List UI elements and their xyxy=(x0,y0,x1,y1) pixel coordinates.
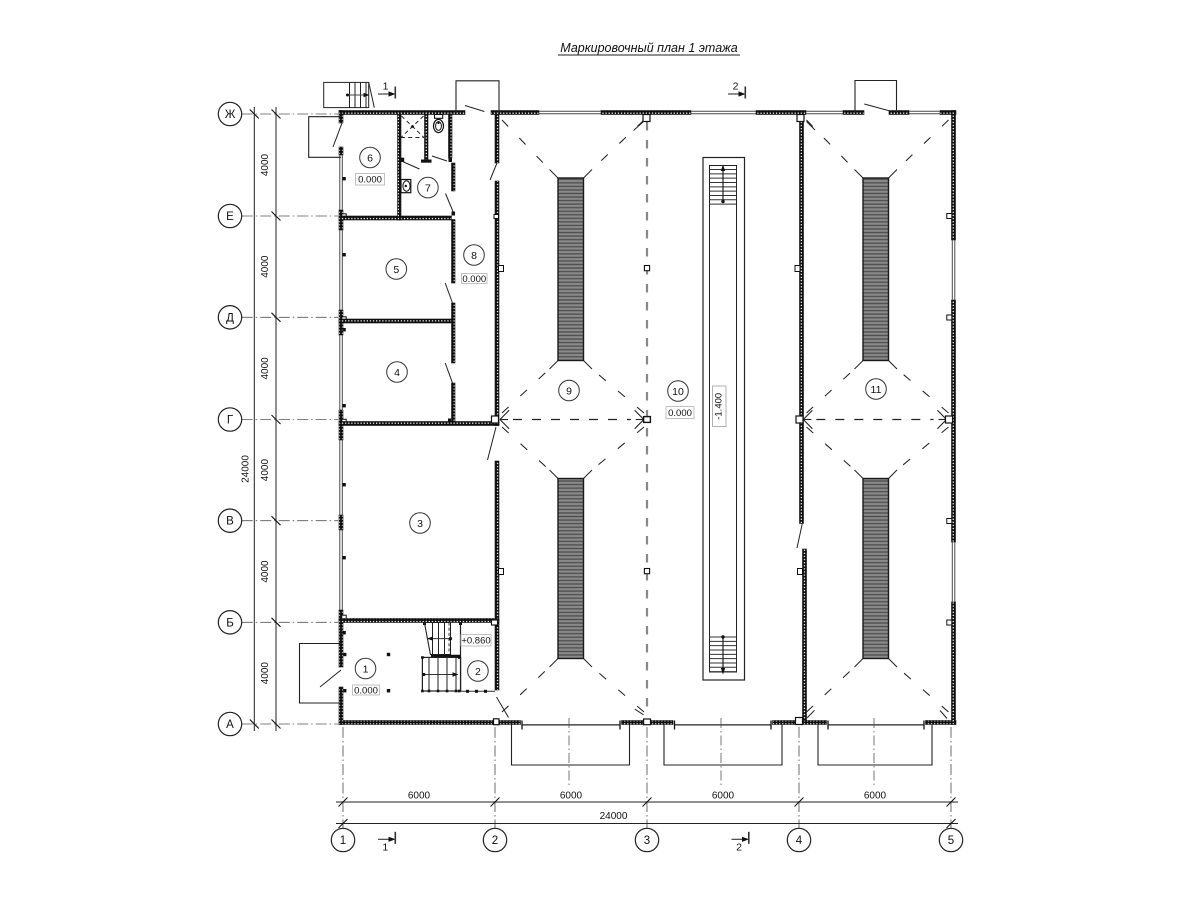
svg-text:5: 5 xyxy=(393,264,399,276)
svg-text:5: 5 xyxy=(948,835,954,847)
svg-text:-1.400: -1.400 xyxy=(714,393,725,420)
svg-text:24000: 24000 xyxy=(600,811,628,822)
svg-text:6000: 6000 xyxy=(712,791,735,802)
svg-text:2: 2 xyxy=(492,835,498,847)
svg-text:0.000: 0.000 xyxy=(358,175,382,186)
svg-text:9: 9 xyxy=(566,385,572,397)
svg-text:7: 7 xyxy=(425,182,431,194)
svg-text:1: 1 xyxy=(363,663,369,675)
svg-text:2: 2 xyxy=(733,81,739,93)
svg-text:4000: 4000 xyxy=(260,459,271,482)
svg-text:4000: 4000 xyxy=(260,357,271,380)
svg-text:4000: 4000 xyxy=(260,560,271,583)
svg-text:2: 2 xyxy=(475,666,481,678)
svg-text:0.000: 0.000 xyxy=(354,685,378,696)
svg-text:Г: Г xyxy=(227,415,234,427)
svg-text:3: 3 xyxy=(644,835,650,847)
svg-text:10: 10 xyxy=(672,386,684,398)
svg-text:6000: 6000 xyxy=(408,791,431,802)
svg-text:24000: 24000 xyxy=(241,455,252,483)
svg-text:Е: Е xyxy=(226,211,234,223)
svg-text:1: 1 xyxy=(383,81,389,93)
svg-text:4: 4 xyxy=(394,367,400,379)
svg-text:11: 11 xyxy=(871,384,882,396)
svg-text:2: 2 xyxy=(736,842,742,854)
svg-text:4000: 4000 xyxy=(260,662,271,685)
svg-text:4000: 4000 xyxy=(260,255,271,278)
svg-text:1: 1 xyxy=(340,835,346,847)
svg-text:4000: 4000 xyxy=(260,153,271,176)
svg-text:В: В xyxy=(226,516,234,528)
svg-text:3: 3 xyxy=(417,518,423,530)
svg-text:1: 1 xyxy=(382,842,388,854)
svg-text:Ж: Ж xyxy=(225,109,236,121)
svg-text:Маркировочный план 1 этажа: Маркировочный план 1 этажа xyxy=(560,41,737,55)
svg-text:А: А xyxy=(226,719,234,731)
svg-text:Б: Б xyxy=(226,617,234,629)
svg-text:Д: Д xyxy=(226,312,234,324)
svg-text:6000: 6000 xyxy=(864,791,887,802)
svg-text:0.000: 0.000 xyxy=(668,408,692,419)
svg-text:0.000: 0.000 xyxy=(462,274,486,285)
svg-text:6: 6 xyxy=(367,152,373,164)
svg-text:4: 4 xyxy=(796,835,803,847)
svg-text:6000: 6000 xyxy=(560,791,583,802)
svg-text:+0.860: +0.860 xyxy=(461,636,490,647)
svg-text:8: 8 xyxy=(471,250,477,262)
